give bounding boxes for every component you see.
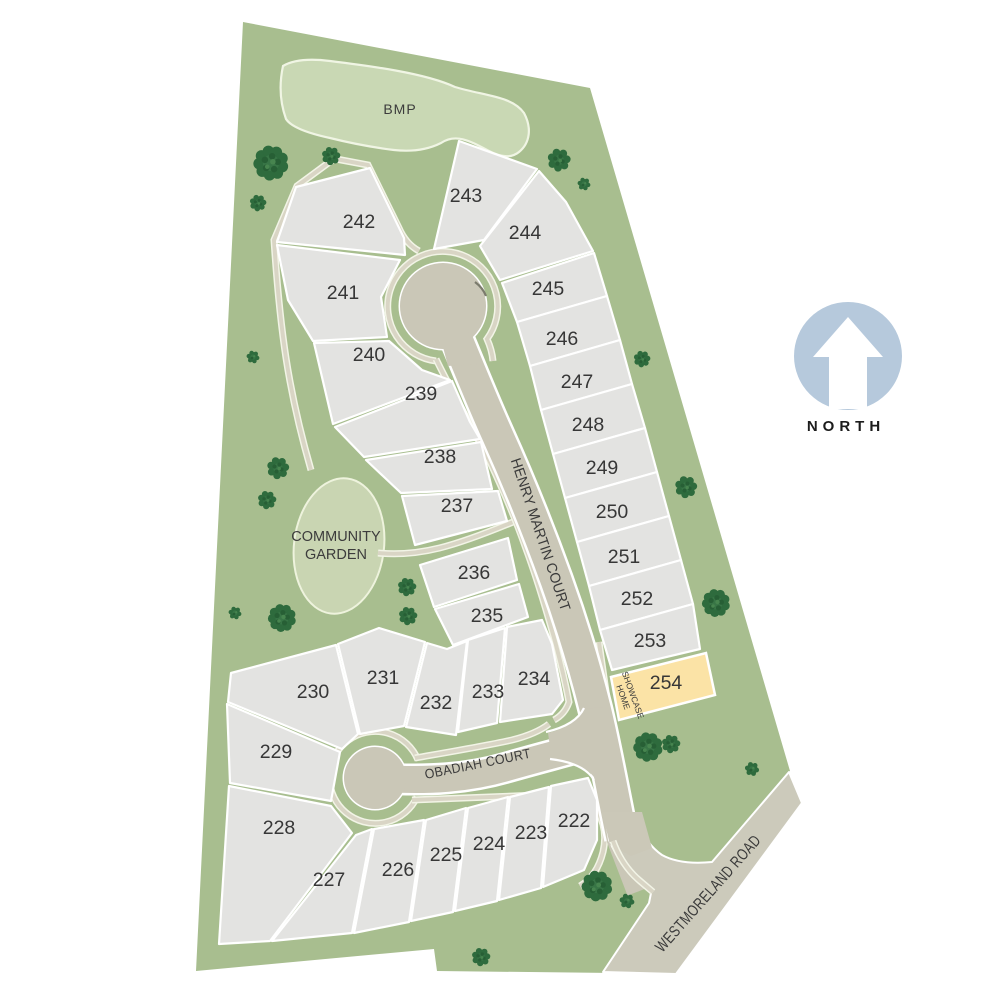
svg-text:244: 244 [509, 222, 542, 244]
svg-text:232: 232 [420, 692, 453, 714]
svg-text:GARDEN: GARDEN [305, 547, 367, 563]
svg-text:236: 236 [458, 562, 491, 584]
svg-text:241: 241 [327, 282, 360, 304]
svg-text:240: 240 [353, 344, 386, 366]
svg-text:228: 228 [263, 817, 296, 839]
svg-text:248: 248 [572, 414, 605, 436]
svg-text:226: 226 [382, 859, 415, 881]
svg-text:229: 229 [260, 741, 293, 763]
svg-text:223: 223 [515, 822, 548, 844]
svg-text:251: 251 [608, 546, 641, 568]
svg-text:238: 238 [424, 446, 457, 468]
svg-text:243: 243 [450, 185, 483, 207]
svg-text:BMP: BMP [383, 101, 416, 117]
svg-text:246: 246 [546, 328, 579, 350]
svg-text:250: 250 [596, 501, 629, 523]
svg-text:234: 234 [518, 668, 551, 690]
svg-text:224: 224 [473, 833, 506, 855]
svg-text:222: 222 [558, 810, 591, 832]
svg-text:230: 230 [297, 681, 330, 703]
svg-text:NORTH: NORTH [807, 418, 885, 435]
svg-text:225: 225 [430, 844, 463, 866]
svg-text:249: 249 [586, 457, 619, 479]
svg-text:245: 245 [532, 278, 565, 300]
svg-text:239: 239 [405, 383, 438, 405]
svg-text:237: 237 [441, 495, 474, 517]
svg-text:247: 247 [561, 371, 594, 393]
svg-text:233: 233 [472, 681, 505, 703]
svg-text:235: 235 [471, 605, 504, 627]
svg-text:231: 231 [367, 667, 400, 689]
svg-text:COMMUNITY: COMMUNITY [291, 529, 381, 545]
svg-text:254: 254 [650, 672, 683, 694]
svg-text:242: 242 [343, 211, 376, 233]
svg-text:227: 227 [313, 869, 346, 891]
svg-text:253: 253 [634, 630, 667, 652]
svg-text:252: 252 [621, 588, 654, 610]
